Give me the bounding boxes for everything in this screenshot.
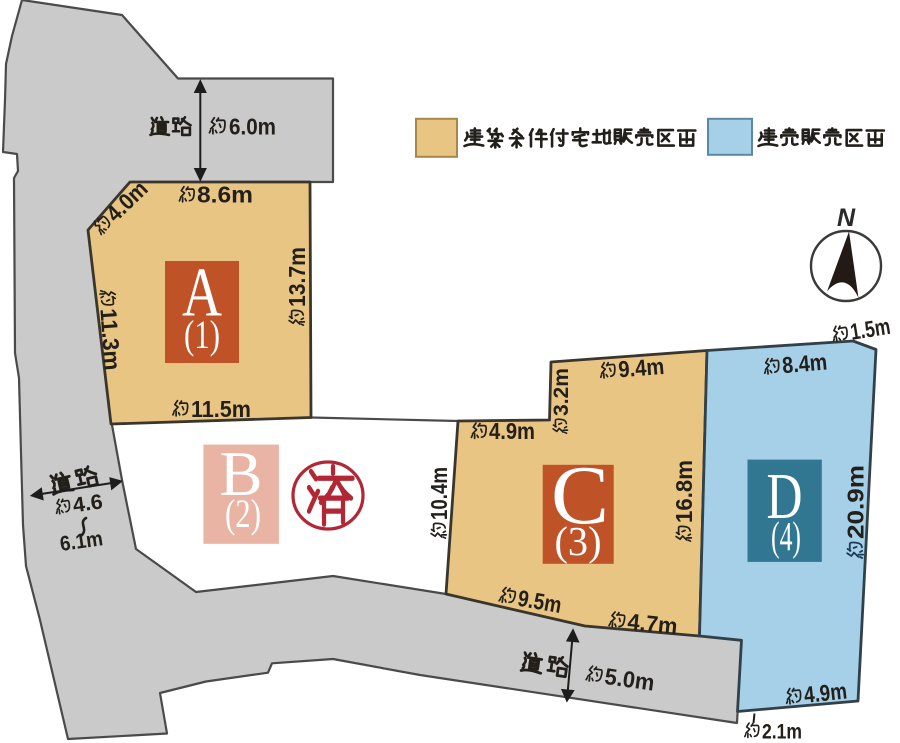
svg-text:4.6: 4.6 — [71, 490, 104, 517]
svg-text:6.0m: 6.0m — [229, 114, 276, 140]
svg-text:8.6m: 8.6m — [197, 182, 253, 208]
svg-text:11.5m: 11.5m — [191, 396, 251, 422]
svg-text:3.2m: 3.2m — [550, 368, 573, 416]
svg-text:8.4m: 8.4m — [781, 348, 828, 378]
svg-text:4.7m: 4.7m — [626, 608, 678, 639]
svg-text:4.9m: 4.9m — [803, 678, 848, 708]
svg-text:9.4m: 9.4m — [617, 353, 665, 383]
svg-text:1.5m: 1.5m — [848, 313, 892, 345]
svg-text:2.1m: 2.1m — [762, 721, 802, 743]
svg-text:N: N — [837, 204, 856, 232]
svg-text:10.4m: 10.4m — [426, 467, 452, 520]
svg-text:4.9m: 4.9m — [489, 418, 535, 444]
svg-text:11.3m: 11.3m — [95, 307, 125, 371]
svg-text:20.9m: 20.9m — [843, 465, 869, 539]
svg-text:16.8m: 16.8m — [671, 460, 697, 523]
svg-text:(2): (2) — [225, 491, 261, 536]
svg-text:(3): (3) — [555, 518, 602, 564]
svg-text:(4): (4) — [771, 513, 801, 559]
svg-text:(1): (1) — [184, 312, 220, 357]
svg-text:13.7m: 13.7m — [284, 247, 310, 307]
